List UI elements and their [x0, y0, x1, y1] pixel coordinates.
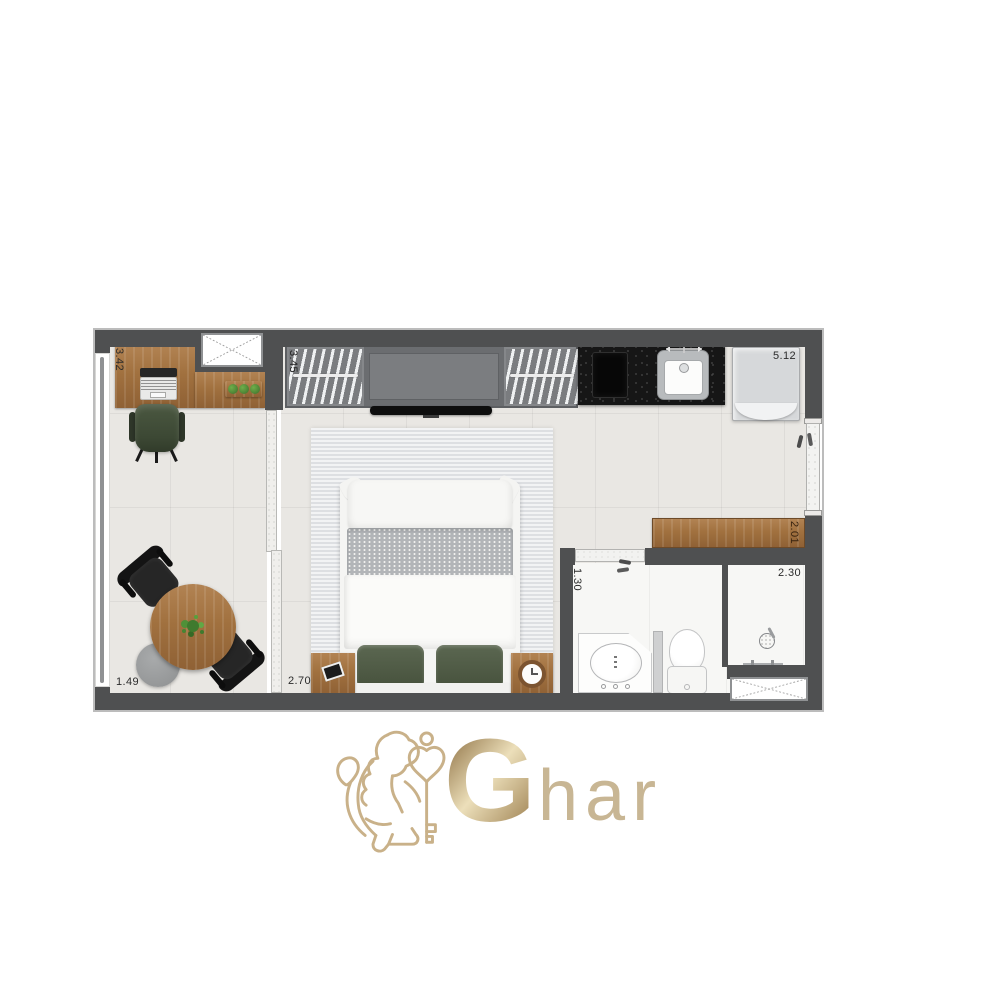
basin-faucet-icon [614, 656, 617, 670]
entry-door-frame-bottom [804, 510, 822, 516]
shower-partition [722, 563, 728, 667]
dim-office-width: 1.49 [116, 677, 139, 688]
left-window-glass [100, 357, 104, 683]
left-wall-stub-top [95, 330, 110, 353]
office-chair-seat [135, 404, 179, 452]
bed [340, 476, 520, 697]
tv-stand [423, 415, 439, 418]
dim-bathroom-width: 1.30 [571, 568, 582, 591]
office-shaft-window [201, 333, 263, 367]
bottom-wall [95, 693, 822, 710]
right-wall-upper [805, 330, 822, 423]
sliding-glass-panel-bottom [271, 550, 282, 693]
partition-wall-stub [265, 345, 283, 410]
dim-shower-width: 2.30 [778, 568, 801, 579]
bar-counter [652, 518, 805, 548]
brand-watermark: G har [330, 720, 690, 865]
bathroom-window [730, 677, 808, 701]
brand-name-rest: har [538, 760, 663, 832]
toilet [665, 629, 709, 695]
desk-planter-tray [225, 381, 262, 397]
wardrobe-hangers-left [289, 349, 362, 404]
cooktop [592, 352, 628, 398]
kitchen-sink [657, 350, 709, 400]
office-chair-arm-right [178, 412, 185, 442]
wardrobe [285, 345, 578, 408]
sliding-glass-panel-top [266, 410, 277, 552]
plant-icon [239, 384, 249, 394]
plant-icon [250, 384, 260, 394]
sink-drain [679, 363, 689, 373]
clock-icon [518, 660, 546, 688]
laptop-screen [140, 368, 177, 377]
laptop-trackpad [150, 392, 166, 398]
nightstand-left [311, 653, 355, 694]
vanity-partition [653, 631, 663, 693]
wardrobe-shelf [364, 347, 504, 406]
dim-bedroom-width: 2.70 [288, 676, 311, 687]
wardrobe-hangers-right [506, 349, 578, 404]
floor-plan: 3.42 1.49 3.45 2.70 5.12 2.01 1.30 2.30 [95, 330, 822, 710]
dim-wardrobe-length: 3.45 [287, 350, 298, 373]
left-wall-stub-bottom [95, 687, 110, 710]
nightstand-right [511, 653, 553, 695]
sliding-glass-door [266, 410, 282, 693]
bed-pillow [348, 480, 512, 532]
photo-frame-icon [321, 661, 345, 681]
bathroom-top-wall-right [645, 548, 822, 565]
tv [370, 406, 492, 415]
brand-initial: G [444, 722, 536, 840]
dim-living-length: 5.12 [773, 351, 796, 362]
dim-office-depth: 3.42 [113, 348, 124, 371]
office-chair [128, 404, 186, 462]
lion-key-logo-icon [330, 726, 452, 858]
table-plant-icon [179, 612, 207, 640]
laptop [140, 368, 177, 400]
dim-counter-length: 2.01 [788, 521, 799, 544]
floorplan-image: 3.42 1.49 3.45 2.70 5.12 2.01 1.30 2.30 [0, 0, 988, 1000]
bed-duvet [344, 575, 516, 649]
bathroom-door [575, 549, 645, 562]
plant-icon [228, 384, 238, 394]
shower-head-icon [750, 627, 780, 659]
washer-door [735, 403, 797, 420]
bed-blanket [347, 528, 513, 578]
